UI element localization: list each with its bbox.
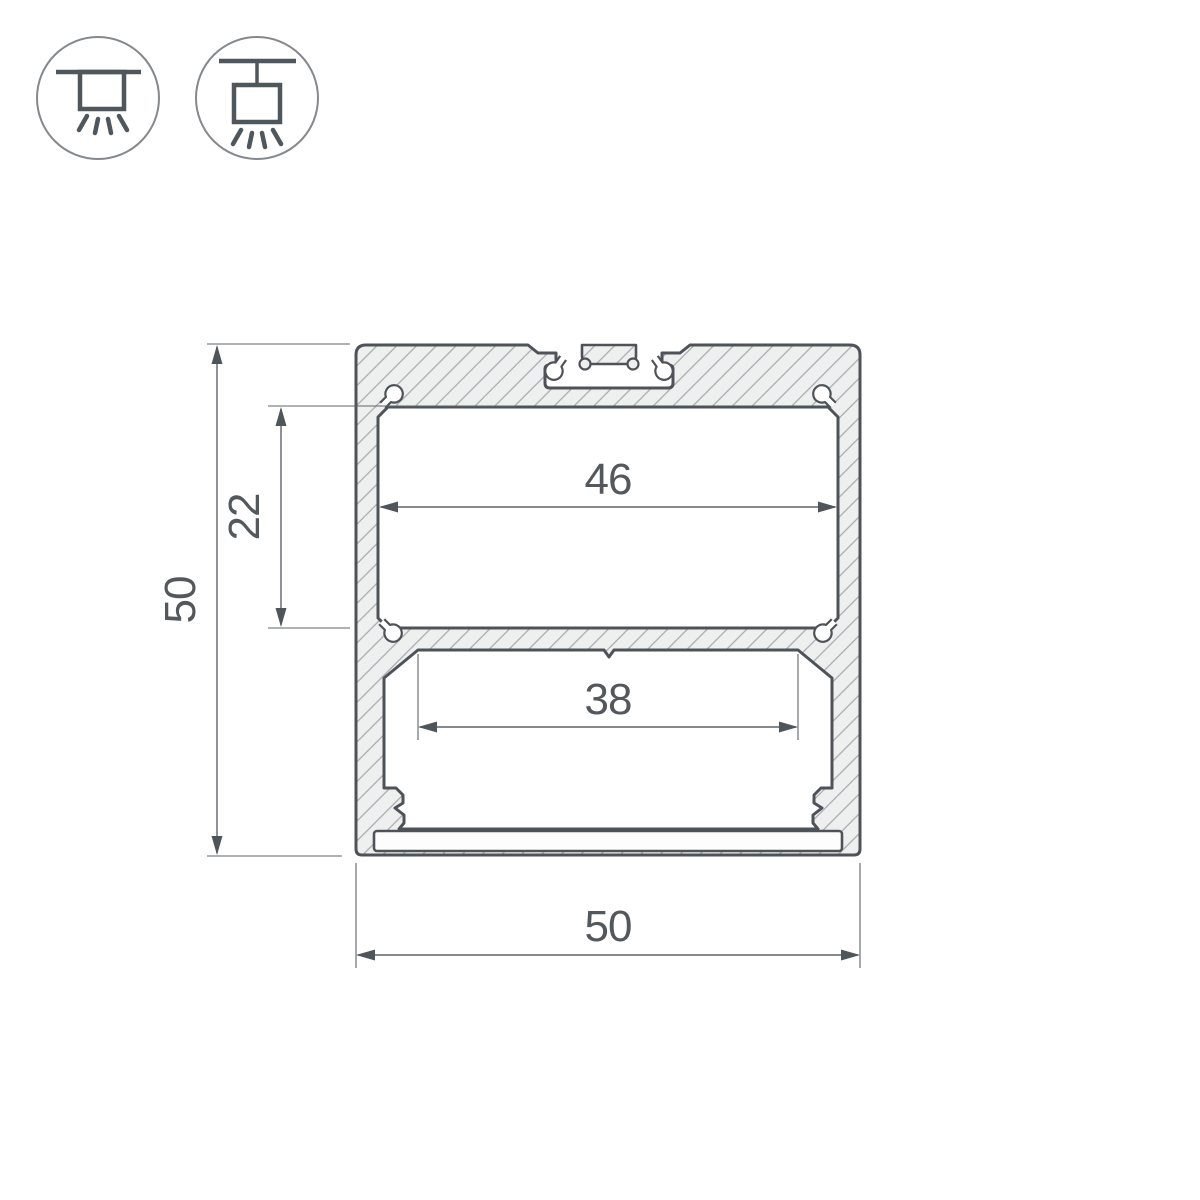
- profile-cross-section-drawing: 50 22 46 38: [0, 0, 1200, 1200]
- dim-upper-chamber-width-label: 46: [585, 455, 632, 504]
- dim-total-height-label: 50: [156, 577, 205, 624]
- diffuser-plate: [374, 831, 842, 851]
- dim-lower-chamber-width: 38: [418, 654, 798, 740]
- dim-upper-chamber-width: 46: [379, 455, 837, 513]
- slot-hook-left: [580, 359, 591, 370]
- dim-upper-chamber-height-label: 22: [220, 494, 269, 541]
- surface-mount-icon: [37, 37, 159, 159]
- dim-total-width-label: 50: [585, 902, 632, 951]
- technical-drawing-page: 50 22 46 38: [0, 0, 1200, 1200]
- light-rays: [233, 130, 281, 147]
- profile-body: [356, 345, 860, 855]
- slot-hook-right: [628, 359, 639, 370]
- suspended-mount-icon: [196, 37, 318, 159]
- light-rays: [79, 116, 127, 133]
- dim-total-height: 50: [156, 344, 350, 856]
- mounting-icons: [37, 37, 318, 159]
- dimensions: 50 22 46 38: [156, 344, 860, 968]
- profile-material-section: [356, 345, 860, 855]
- dim-total-width: 50: [356, 863, 860, 968]
- dim-lower-chamber-width-label: 38: [585, 675, 632, 724]
